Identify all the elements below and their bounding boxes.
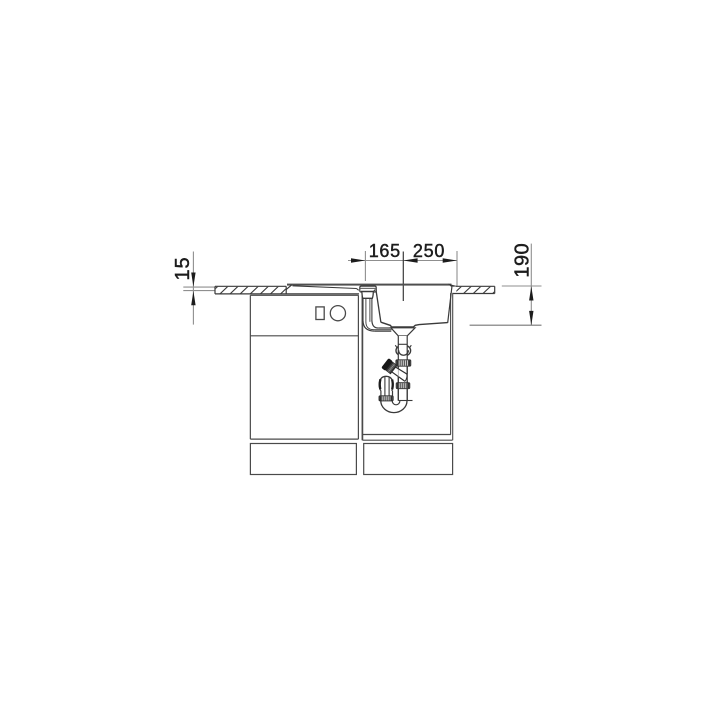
svg-text:165: 165: [369, 241, 401, 261]
svg-text:15: 15: [172, 256, 194, 280]
svg-text:250: 250: [413, 241, 445, 261]
svg-text:190: 190: [512, 243, 534, 278]
